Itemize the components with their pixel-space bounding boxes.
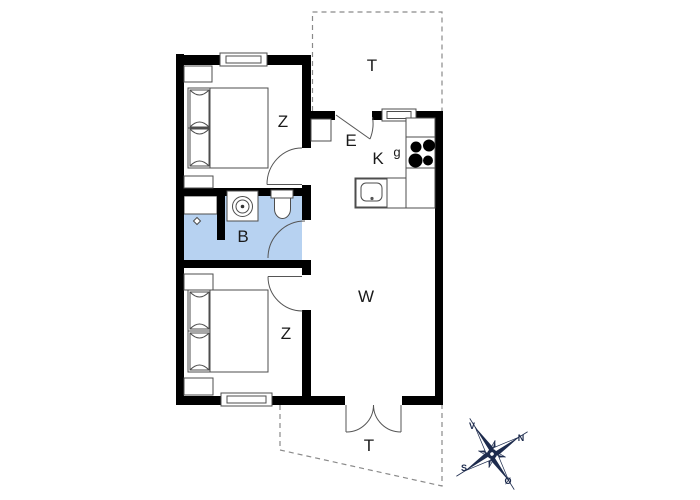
wall-central-4: [302, 310, 311, 396]
bed-top: [188, 88, 268, 168]
wall-bathroom-partition: [217, 196, 225, 240]
room-label-kitchen: K: [372, 149, 383, 169]
wall-bathroom-bottom: [176, 260, 311, 268]
pillow: [190, 333, 209, 370]
terrace-top-outline: [313, 12, 443, 111]
kitchen-sink: [356, 179, 387, 207]
pillow: [190, 129, 209, 166]
door-terrace-double: [346, 405, 401, 432]
wardrobe: [184, 176, 213, 188]
room-label-bedroom-bottom: Z: [281, 324, 291, 344]
floor-plan: Z Z B E K g W T T V N S Ø: [0, 0, 700, 500]
window-bedroom-bottom: [221, 393, 272, 406]
pillow: [190, 292, 209, 329]
room-label-bathroom: B: [237, 227, 248, 247]
room-label-terrace-top: T: [367, 56, 377, 76]
wardrobe: [184, 274, 213, 290]
terrace-bottom-outline: [280, 405, 442, 486]
compass-label-north: N: [518, 433, 525, 443]
compass-label-west: V: [469, 421, 475, 431]
room-label-terrace-bottom: T: [364, 436, 374, 456]
bathroom-niche: [184, 196, 217, 214]
bed-bottom: [188, 290, 268, 372]
wall-right: [435, 111, 443, 405]
floor-plan-drawing: [0, 0, 700, 500]
door-bedroom-top: [267, 148, 302, 185]
window-bedroom-top: [220, 53, 267, 66]
compass-rose: [434, 396, 550, 500]
entrance-closet: [311, 119, 331, 141]
compass-label-south: S: [461, 463, 467, 473]
wardrobe: [184, 378, 213, 395]
room-label-stove: g: [393, 145, 400, 160]
wall-left: [176, 54, 184, 405]
door-bedroom-bottom: [268, 277, 303, 312]
room-label-living-room: W: [358, 287, 374, 307]
wall-bottom-2: [402, 396, 443, 405]
compass-label-east: Ø: [504, 476, 511, 486]
room-label-entrance: E: [345, 131, 356, 151]
wardrobe: [184, 66, 212, 82]
pillow: [190, 90, 209, 127]
room-label-bedroom-top: Z: [278, 112, 288, 132]
wall-central-1: [302, 55, 311, 148]
washing-machine: [227, 191, 258, 221]
